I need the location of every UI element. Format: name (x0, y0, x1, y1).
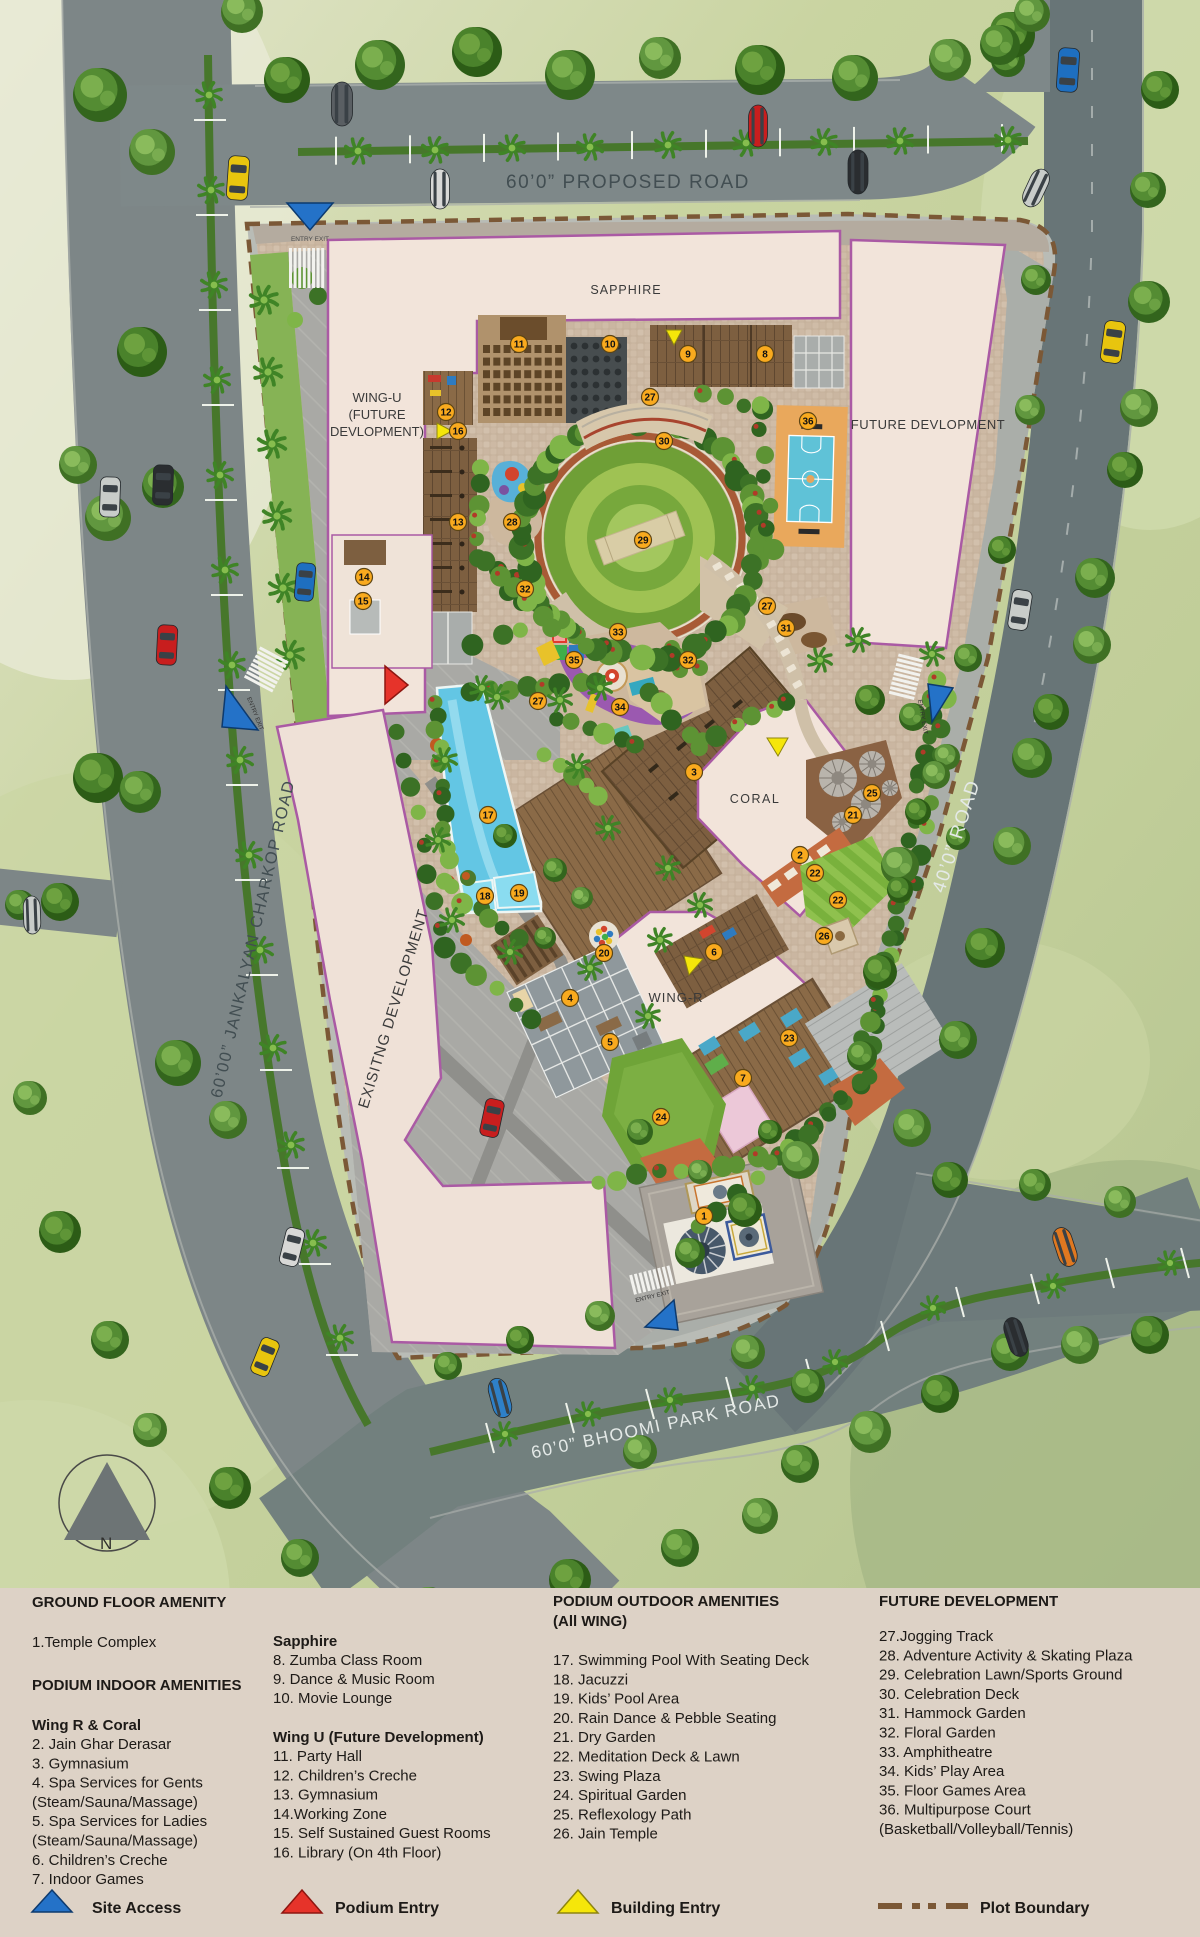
svg-text:1: 1 (701, 1212, 707, 1223)
svg-text:33: 33 (612, 628, 624, 639)
svg-text:(Steam/Sauna/Massage): (Steam/Sauna/Massage) (32, 1794, 198, 1811)
svg-text:35: 35 (568, 656, 580, 667)
svg-text:4. Spa Services for Gents: 4. Spa Services for Gents (32, 1775, 203, 1792)
svg-text:4: 4 (567, 994, 573, 1005)
svg-text:8. Zumba Class Room: 8. Zumba Class Room (273, 1652, 422, 1669)
svg-text:15: 15 (357, 597, 369, 608)
svg-text:21: 21 (847, 811, 859, 822)
svg-text:13. Gymnasium: 13. Gymnasium (273, 1787, 378, 1804)
svg-text:SAPPHIRE: SAPPHIRE (590, 283, 661, 297)
svg-text:Podium Entry: Podium Entry (335, 1900, 439, 1917)
svg-text:27.Jogging Track: 27.Jogging Track (879, 1628, 994, 1645)
svg-text:12. Children’s Creche: 12. Children’s Creche (273, 1767, 417, 1784)
svg-text:60’0” PROPOSED ROAD: 60’0” PROPOSED ROAD (506, 172, 750, 193)
svg-text:28: 28 (506, 518, 518, 529)
svg-text:Wing U (Future Development): Wing U (Future Development) (273, 1729, 484, 1746)
svg-text:CORAL: CORAL (730, 792, 781, 806)
svg-text:(Steam/Sauna/Massage): (Steam/Sauna/Massage) (32, 1833, 198, 1850)
svg-text:(FUTURE: (FUTURE (348, 407, 405, 422)
svg-text:Site Access: Site Access (92, 1900, 181, 1917)
svg-text:22. Meditation Deck & Lawn: 22. Meditation Deck & Lawn (553, 1749, 740, 1766)
svg-text:3: 3 (691, 768, 697, 779)
svg-text:27: 27 (644, 393, 656, 404)
svg-text:1.Temple Complex: 1.Temple Complex (32, 1634, 157, 1651)
svg-text:30. Celebration Deck: 30. Celebration Deck (879, 1686, 1020, 1703)
svg-text:30: 30 (658, 437, 670, 448)
svg-text:26: 26 (818, 932, 830, 943)
svg-text:PODIUM OUTDOOR AMENITIES: PODIUM OUTDOOR AMENITIES (553, 1593, 779, 1610)
svg-text:5: 5 (607, 1038, 613, 1049)
svg-text:20. Rain Dance & Pebble Seatin: 20. Rain Dance & Pebble Seating (553, 1710, 776, 1727)
svg-text:25. Reflexology Path: 25. Reflexology Path (553, 1806, 691, 1823)
svg-text:11: 11 (514, 340, 525, 351)
svg-text:26. Jain Temple: 26. Jain Temple (553, 1826, 658, 1843)
svg-text:12: 12 (440, 408, 452, 419)
svg-text:18: 18 (479, 892, 491, 903)
svg-text:22: 22 (809, 869, 821, 880)
svg-text:N: N (100, 1534, 112, 1553)
svg-text:11. Party Hall: 11. Party Hall (273, 1748, 362, 1765)
svg-text:36. Multipurpose Court: 36. Multipurpose Court (879, 1802, 1032, 1819)
svg-text:16. Library (On 4th Floor): 16. Library (On 4th Floor) (273, 1845, 441, 1862)
svg-text:9: 9 (685, 350, 691, 361)
svg-text:GROUND FLOOR AMENITY: GROUND FLOOR AMENITY (32, 1594, 226, 1611)
svg-text:34: 34 (614, 703, 626, 714)
svg-text:29: 29 (637, 536, 649, 547)
svg-text:33. Amphitheatre: 33. Amphitheatre (879, 1744, 992, 1761)
svg-text:27: 27 (532, 697, 544, 708)
svg-text:25: 25 (866, 789, 878, 800)
svg-text:23. Swing Plaza: 23. Swing Plaza (553, 1768, 661, 1785)
svg-text:36: 36 (802, 417, 814, 428)
svg-text:7. Indoor Games: 7. Indoor Games (32, 1871, 144, 1888)
svg-text:FUTURE DEVELOPMENT: FUTURE DEVELOPMENT (879, 1593, 1058, 1610)
svg-text:24: 24 (655, 1113, 667, 1124)
svg-text:24. Spiritual Garden: 24. Spiritual Garden (553, 1787, 686, 1804)
svg-text:32: 32 (682, 656, 694, 667)
svg-text:DEVLOPMENT): DEVLOPMENT) (330, 424, 424, 439)
svg-text:3. Gymnasium: 3. Gymnasium (32, 1755, 129, 1772)
svg-text:32: 32 (519, 585, 531, 596)
svg-text:2: 2 (797, 851, 803, 862)
svg-text:35. Floor Games Area: 35. Floor Games Area (879, 1782, 1026, 1799)
svg-text:ENTRY EXIT: ENTRY EXIT (291, 236, 329, 243)
svg-text:14: 14 (358, 573, 370, 584)
svg-text:7: 7 (740, 1074, 746, 1085)
svg-text:32. Floral Garden: 32. Floral Garden (879, 1725, 996, 1742)
svg-text:10: 10 (604, 340, 616, 351)
svg-text:20: 20 (598, 949, 610, 960)
svg-text:(All WING): (All WING) (553, 1613, 627, 1630)
svg-text:21. Dry Garden: 21. Dry Garden (553, 1729, 656, 1746)
svg-text:31: 31 (780, 624, 792, 635)
svg-text:28. Adventure Activity & Skati: 28. Adventure Activity & Skating Plaza (879, 1647, 1133, 1664)
svg-text:Sapphire: Sapphire (273, 1633, 337, 1650)
svg-text:Plot Boundary: Plot Boundary (980, 1900, 1089, 1917)
svg-text:Building Entry: Building Entry (611, 1900, 720, 1917)
svg-text:23: 23 (783, 1034, 795, 1045)
svg-text:19. Kids’ Pool Area: 19. Kids’ Pool Area (553, 1691, 680, 1708)
svg-text:FUTURE DEVLOPMENT: FUTURE DEVLOPMENT (851, 417, 1005, 432)
svg-text:6: 6 (711, 948, 717, 959)
svg-text:31. Hammock Garden: 31. Hammock Garden (879, 1705, 1026, 1722)
svg-text:10. Movie Lounge: 10. Movie Lounge (273, 1690, 392, 1707)
svg-text:27: 27 (761, 602, 773, 613)
svg-text:16: 16 (452, 427, 464, 438)
svg-text:17. Swimming Pool With Seating: 17. Swimming Pool With Seating Deck (553, 1652, 809, 1669)
svg-text:19: 19 (513, 889, 525, 900)
svg-text:8: 8 (762, 350, 768, 361)
svg-text:WING-R: WING-R (648, 990, 703, 1005)
svg-text:15. Self Sustained Guest Rooms: 15. Self Sustained Guest Rooms (273, 1825, 491, 1842)
svg-text:13: 13 (452, 518, 464, 529)
svg-text:5. Spa Services for Ladies: 5. Spa Services for Ladies (32, 1813, 207, 1830)
svg-text:17: 17 (482, 811, 494, 822)
svg-text:WING-U: WING-U (352, 390, 401, 405)
svg-text:18. Jacuzzi: 18. Jacuzzi (553, 1671, 628, 1688)
svg-text:29. Celebration Lawn/Sports Gr: 29. Celebration Lawn/Sports Ground (879, 1667, 1122, 1684)
svg-text:Wing R & Coral: Wing R & Coral (32, 1717, 141, 1734)
svg-text:14.Working Zone: 14.Working Zone (273, 1806, 387, 1823)
svg-text:9. Dance & Music Room: 9. Dance & Music Room (273, 1671, 435, 1688)
svg-text:2. Jain Ghar Derasar: 2. Jain Ghar Derasar (32, 1736, 171, 1753)
svg-text:6. Children’s Creche: 6. Children’s Creche (32, 1852, 168, 1869)
svg-text:22: 22 (832, 896, 844, 907)
svg-text:PODIUM INDOOR AMENITIES: PODIUM INDOOR AMENITIES (32, 1677, 241, 1694)
svg-text:(Basketball/Volleyball/Tennis): (Basketball/Volleyball/Tennis) (879, 1821, 1073, 1838)
svg-text:34. Kids’ Play Area: 34. Kids’ Play Area (879, 1763, 1005, 1780)
